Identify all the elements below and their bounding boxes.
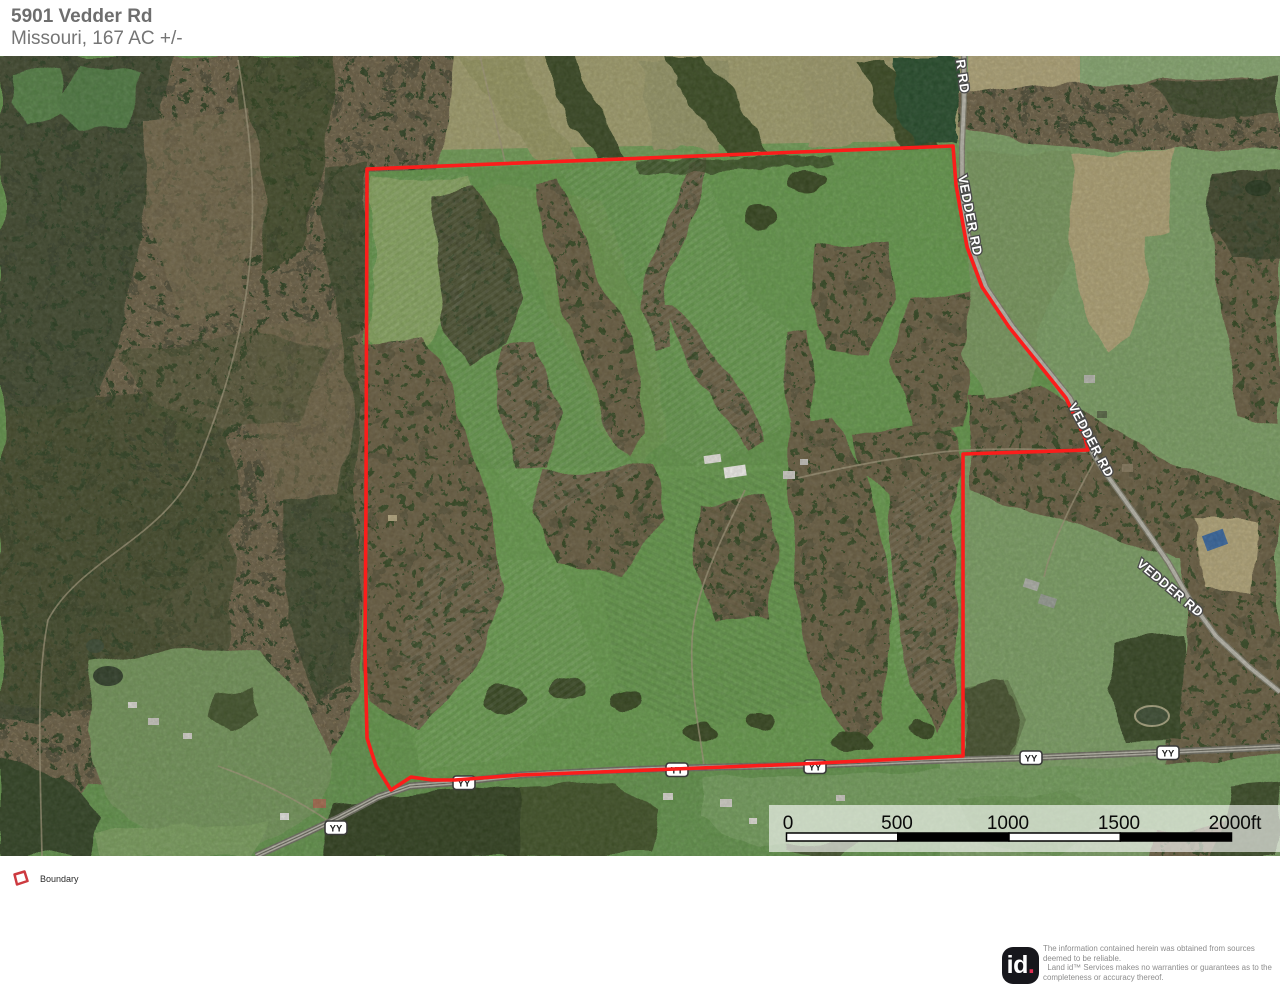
svg-text:2000ft: 2000ft — [1209, 813, 1263, 834]
svg-text:500: 500 — [881, 813, 913, 834]
svg-text:1000: 1000 — [987, 813, 1029, 834]
svg-text:1500: 1500 — [1098, 813, 1140, 834]
svg-text:0: 0 — [783, 813, 794, 834]
